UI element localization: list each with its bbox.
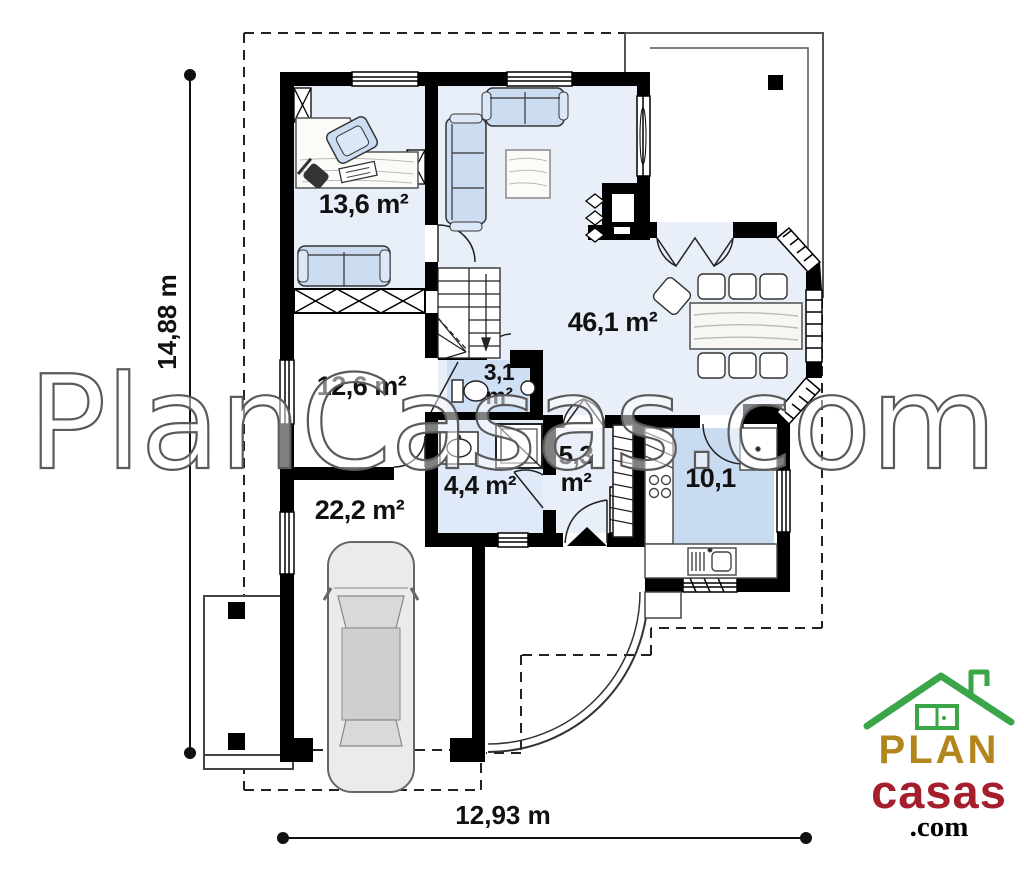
stairs	[438, 268, 500, 358]
dining-chair	[729, 274, 756, 299]
terrace-column	[768, 75, 783, 90]
room-label-storage: 12,6 m²	[294, 372, 429, 400]
dining-table	[690, 303, 802, 349]
door-storage	[394, 436, 425, 467]
window-kitchen-bottom	[683, 578, 737, 592]
sofa-two-seat	[482, 88, 568, 126]
coffee-table	[506, 150, 550, 198]
entrance-steps-curve	[488, 592, 648, 752]
window-bath-bottom	[498, 533, 528, 547]
logo-word-casas: casas	[856, 768, 1022, 815]
logo-house-icon	[859, 664, 1019, 730]
dining-chair	[760, 353, 787, 378]
porch	[204, 596, 293, 769]
partition-hatched	[294, 289, 425, 313]
room-label-hall: 5,3 m²	[546, 442, 606, 497]
dimension-label-horizontal: 12,93 m	[418, 800, 588, 831]
hall-shelving	[613, 425, 633, 537]
window-kitchen-right	[777, 470, 790, 532]
dining-chair	[760, 274, 787, 299]
porch-column	[228, 602, 245, 619]
room-label-wc: 3,1 m²	[468, 360, 530, 408]
sofa-three-seat	[446, 114, 486, 231]
floor-plan-page: 13,6 m² 46,1 m² 12,6 m² 22,2 m² 3,1 m² 4…	[0, 0, 1024, 869]
window-living-right	[637, 96, 650, 176]
dining-chair	[698, 353, 725, 378]
porch-column	[228, 733, 245, 750]
window-top-office	[352, 72, 418, 86]
kitchen-sink	[688, 548, 736, 575]
window-left-storage	[280, 360, 294, 424]
dining-chair	[698, 274, 725, 299]
shower	[496, 424, 542, 468]
room-label-kitchen: 10,1	[663, 464, 758, 492]
plancasas-logo: PLAN casas .com	[856, 664, 1022, 842]
car	[324, 542, 418, 792]
dining-chair	[729, 353, 756, 378]
dimension-label-vertical: 14,88 m	[152, 257, 192, 387]
office-sofa	[298, 246, 390, 286]
room-label-office: 13,6 m²	[296, 190, 431, 218]
kitchen-outside-step	[645, 592, 681, 618]
bath-sink	[440, 432, 478, 464]
window-top-living	[507, 72, 572, 86]
room-label-bathroom: 4,4 m²	[415, 472, 545, 499]
room-label-garage: 22,2 m²	[292, 496, 427, 524]
logo-word-plan: PLAN	[856, 730, 1022, 770]
firewood	[586, 194, 604, 242]
room-label-living: 46,1 m²	[530, 308, 695, 336]
